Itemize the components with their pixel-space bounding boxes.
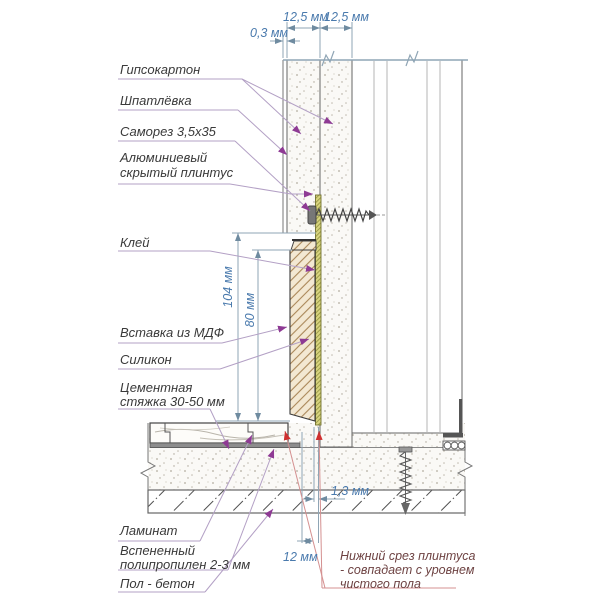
label-silicone: Силикон: [120, 352, 172, 367]
label-foamed-polypropylene: Вспененный полипропилен 2-3 мм: [120, 544, 280, 571]
dim-plinth-height: 104 мм: [221, 257, 235, 317]
label-mdf-insert: Вставка из МДФ: [120, 325, 224, 340]
label-cement-screed: Цементная стяжка 30-50 мм: [120, 381, 232, 409]
dim-gypsum-sheet-1: 12,5 мм: [283, 10, 323, 24]
label-laminate: Ламинат: [120, 523, 178, 538]
plinth-detail-diagram: 12,5 мм 12,5 мм 0,3 мм 104 мм 80 мм 1,3 …: [0, 0, 600, 600]
label-concrete-floor: Пол - бетон: [120, 576, 195, 591]
dim-bottom-gap: 1,3 мм: [331, 484, 369, 498]
label-self-tapping-screw: Саморез 3,5x35: [120, 124, 216, 139]
diagram-canvas: [0, 0, 600, 600]
label-gypsum-board: Гипсокартон: [120, 62, 200, 77]
label-glue: Клей: [120, 235, 149, 250]
dim-gypsum-sheet-2: 12,5 мм: [324, 10, 364, 24]
dim-plinth-depth: 12 мм: [283, 550, 315, 564]
label-aluminum-hidden-plinth: Алюминиевый скрытый плинтус: [120, 150, 240, 180]
label-putty: Шпатлёвка: [120, 93, 192, 108]
note-bottom-cut: Нижний срез плинтуса - совпадает с уровн…: [340, 549, 478, 591]
floor-structure: [141, 423, 472, 516]
dim-insert-height: 80 мм: [243, 280, 257, 340]
dim-putty-thickness: 0,3 мм: [250, 26, 292, 40]
